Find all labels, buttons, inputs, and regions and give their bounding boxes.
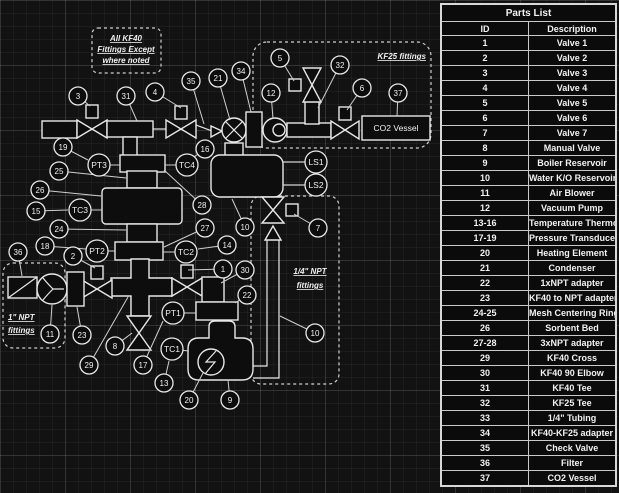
- valve-4: [181, 120, 196, 138]
- part-description: KF40 to NPT adapter: [529, 291, 617, 306]
- callout-label-3: 3: [76, 92, 81, 101]
- callout-label-12: 12: [267, 89, 276, 98]
- callout-label-30: 30: [241, 266, 250, 275]
- quarter-inch-tubing-33: [253, 240, 279, 378]
- part-id: 17-19: [441, 231, 529, 246]
- table-row: 8Manual Valve: [441, 141, 616, 156]
- table-row: 9Boiler Reservoir: [441, 156, 616, 171]
- callout-label-25: 25: [55, 167, 64, 176]
- parts-list-title: Parts List: [441, 4, 616, 22]
- callout-label-PT2: PT2: [89, 246, 105, 256]
- table-row: 12Vacuum Pump: [441, 201, 616, 216]
- table-row: 5Valve 5: [441, 96, 616, 111]
- part-id: 22: [441, 276, 529, 291]
- callout-label-1: 1: [221, 265, 226, 274]
- valve-7-handle: [286, 204, 298, 216]
- kf40-note-line2: Fittings Except: [97, 45, 155, 54]
- mesh-ring-lower-24: [127, 224, 157, 242]
- part-id: 1: [441, 36, 529, 51]
- part-description: Vacuum Pump: [529, 201, 617, 216]
- table-row: 2Valve 2: [441, 51, 616, 66]
- part-id: 27-28: [441, 336, 529, 351]
- manual-valve-8: [127, 333, 151, 350]
- part-description: 1xNPT adapter: [529, 276, 617, 291]
- part-id: 23: [441, 291, 529, 306]
- part-id: 26: [441, 321, 529, 336]
- part-id: 33: [441, 411, 529, 426]
- part-description: KF40 Tee: [529, 381, 617, 396]
- part-id: 20: [441, 246, 529, 261]
- table-row: 21Condenser: [441, 261, 616, 276]
- valve-3: [77, 120, 92, 138]
- quarter-npt-line2: fittings: [297, 281, 324, 290]
- part-description: KF25 Tee: [529, 396, 617, 411]
- valve-2: [97, 280, 112, 298]
- callout-label-21: 21: [214, 74, 223, 83]
- kf40-90-elbow-30: [202, 277, 224, 302]
- piping-diagram: All KF40 Fittings Except where noted KF2…: [0, 0, 440, 493]
- valve-6: [345, 121, 359, 139]
- part-id: 13-16: [441, 216, 529, 231]
- sorbent-bed-26: [102, 188, 182, 224]
- table-row: 331/4" Tubing: [441, 411, 616, 426]
- part-description: Valve 7: [529, 126, 617, 141]
- top-3xnpt-adapter-28: [120, 155, 165, 172]
- piping-diagram-page: All KF40 Fittings Except where noted KF2…: [0, 0, 619, 493]
- callout-label-27: 27: [201, 224, 210, 233]
- table-row: 4Valve 4: [441, 81, 616, 96]
- mesh-ring-upper-25: [127, 171, 157, 188]
- part-description: Boiler Reservoir: [529, 156, 617, 171]
- valve-2-handle: [91, 266, 103, 279]
- co2-vessel-label: CO2 Vessel: [374, 123, 419, 133]
- valve-1-handle: [181, 265, 193, 278]
- part-id: 34: [441, 426, 529, 441]
- parts-table-body: 1Valve 12Valve 23Valve 34Valve 45Valve 5…: [441, 36, 616, 487]
- manual-valve-8: [127, 316, 151, 333]
- callout-label-19: 19: [59, 143, 68, 152]
- table-row: 27-283xNPT adapter: [441, 336, 616, 351]
- table-row: 23KF40 to NPT adapter: [441, 291, 616, 306]
- quarter-npt-line1: 1/4" NPT: [293, 267, 327, 276]
- check-valve-35-line: [196, 125, 212, 131]
- table-row: 7Valve 7: [441, 126, 616, 141]
- callout-label-29: 29: [85, 361, 94, 370]
- part-id: 30: [441, 366, 529, 381]
- part-description: Manual Valve: [529, 141, 617, 156]
- callout-leader-29: [89, 297, 128, 365]
- part-id: 12: [441, 201, 529, 216]
- part-id: 11: [441, 186, 529, 201]
- callout-label-TC1: TC1: [164, 344, 180, 354]
- parts-list-table: Parts List ID Description 1Valve 12Valve…: [440, 3, 617, 487]
- callout-label-7: 7: [316, 224, 321, 233]
- part-id: 29: [441, 351, 529, 366]
- callout-label-15: 15: [32, 207, 41, 216]
- kf40-kf25-adapter-34: [246, 112, 262, 147]
- part-id: 32: [441, 396, 529, 411]
- part-description: Pressure Transducers: [529, 231, 617, 246]
- callout-label-20: 20: [185, 396, 194, 405]
- callout-label-36: 36: [14, 248, 23, 257]
- part-id: 8: [441, 141, 529, 156]
- part-description: CO2 Vessel: [529, 471, 617, 487]
- callout-label-PT3: PT3: [91, 160, 107, 170]
- callout-label-35: 35: [187, 77, 196, 86]
- part-id: 37: [441, 471, 529, 487]
- part-description: Valve 5: [529, 96, 617, 111]
- part-description: Heating Element: [529, 246, 617, 261]
- part-description: 3xNPT adapter: [529, 336, 617, 351]
- part-description: Mesh Centering Rings: [529, 306, 617, 321]
- part-id: 7: [441, 126, 529, 141]
- callout-label-LS1: LS1: [308, 157, 323, 167]
- callout-label-26: 26: [36, 186, 45, 195]
- part-description: KF40 Cross: [529, 351, 617, 366]
- table-row: 34KF40-KF25 adapter: [441, 426, 616, 441]
- callout-label-18: 18: [41, 242, 50, 251]
- one-inch-npt-line2: fittings: [8, 326, 35, 335]
- one-inch-npt-line1: 1" NPT: [8, 313, 36, 322]
- table-row: 6Valve 6: [441, 111, 616, 126]
- table-row: 29KF40 Cross: [441, 351, 616, 366]
- kf25-pipe: [287, 123, 331, 137]
- valve-4: [166, 120, 181, 138]
- part-description: Valve 1: [529, 36, 617, 51]
- callout-label-TC3: TC3: [72, 205, 88, 215]
- table-row: 26Sorbent Bed: [441, 321, 616, 336]
- part-description: Valve 4: [529, 81, 617, 96]
- callout-label-22: 22: [243, 291, 252, 300]
- callout-label-4: 4: [153, 88, 158, 97]
- part-description: Valve 6: [529, 111, 617, 126]
- callout-label-23: 23: [78, 331, 87, 340]
- callout-label-6: 6: [360, 84, 365, 93]
- 1xnpt-adapter-22: [196, 302, 238, 320]
- table-row: 13-16Temperature Thermocouples: [441, 216, 616, 231]
- part-id: 9: [441, 156, 529, 171]
- kf40-npt-adapter-23: [67, 272, 84, 306]
- table-row: 10Water K/O Reservoir: [441, 171, 616, 186]
- part-description: Air Blower: [529, 186, 617, 201]
- callout-label-31: 31: [122, 92, 131, 101]
- part-id: 21: [441, 261, 529, 276]
- part-description: KF40 90 Elbow: [529, 366, 617, 381]
- part-description: Check Valve: [529, 441, 617, 456]
- kf25-note-label: KF25 fittings: [378, 52, 427, 61]
- callout-label-PT1: PT1: [165, 308, 181, 318]
- column-header-id: ID: [441, 22, 529, 36]
- part-description: Valve 2: [529, 51, 617, 66]
- table-row: 30KF40 90 Elbow: [441, 366, 616, 381]
- valve-1: [172, 278, 187, 296]
- part-id: 6: [441, 111, 529, 126]
- part-description: Sorbent Bed: [529, 321, 617, 336]
- callout-label-LS2: LS2: [308, 180, 323, 190]
- callout-label-TC4: TC4: [179, 160, 195, 170]
- table-row: 221xNPT adapter: [441, 276, 616, 291]
- callout-label-14: 14: [223, 241, 232, 250]
- bottom-3xnpt-adapter-27: [115, 242, 163, 260]
- column-header-description: Description: [529, 22, 617, 36]
- table-row: 17-19Pressure Transducers: [441, 231, 616, 246]
- callout-label-32: 32: [336, 61, 345, 70]
- kf25-tee-32-stem: [305, 100, 319, 124]
- part-description: Filter: [529, 456, 617, 471]
- table-row: 36Filter: [441, 456, 616, 471]
- part-id: 4: [441, 81, 529, 96]
- callout-label-24: 24: [55, 225, 64, 234]
- table-row: 32KF25 Tee: [441, 396, 616, 411]
- callout-label-5: 5: [278, 54, 283, 63]
- part-description: 1/4" Tubing: [529, 411, 617, 426]
- valve-7: [262, 210, 284, 223]
- table-row: 31KF40 Tee: [441, 381, 616, 396]
- part-id: 2: [441, 51, 529, 66]
- part-id: 3: [441, 66, 529, 81]
- callout-label-11: 11: [46, 330, 55, 339]
- quarter-inch-tubing-33: [253, 240, 267, 366]
- valve-7: [262, 197, 284, 210]
- valve-3-handle: [86, 105, 98, 118]
- part-description: Temperature Thermocouples: [529, 216, 617, 231]
- part-description: Valve 3: [529, 66, 617, 81]
- tee-31: [107, 121, 153, 137]
- table-row: 20Heating Element: [441, 246, 616, 261]
- kf40-note-line3: where noted: [102, 56, 150, 65]
- callout-label-10: 10: [241, 223, 250, 232]
- part-description: Water K/O Reservoir: [529, 171, 617, 186]
- part-description: KF40-KF25 adapter: [529, 426, 617, 441]
- part-id: 5: [441, 96, 529, 111]
- callout-label-9: 9: [228, 396, 233, 405]
- table-row: 1Valve 1: [441, 36, 616, 51]
- part-id: 36: [441, 456, 529, 471]
- callout-label-10: 10: [311, 329, 320, 338]
- part-id: 35: [441, 441, 529, 456]
- callout-label-17: 17: [139, 361, 148, 370]
- flow-arrow-up: [265, 226, 281, 240]
- part-id: 31: [441, 381, 529, 396]
- part-id: 24-25: [441, 306, 529, 321]
- table-row: 3Valve 3: [441, 66, 616, 81]
- valve-6: [331, 121, 345, 139]
- part-id: 10: [441, 171, 529, 186]
- callout-label-2: 2: [71, 252, 76, 261]
- valve-5: [303, 85, 321, 102]
- callout-label-8: 8: [113, 342, 118, 351]
- callout-label-37: 37: [394, 89, 403, 98]
- valve-5: [303, 68, 321, 85]
- water-ko-reservoir-10: [211, 155, 283, 197]
- valve-1: [187, 278, 202, 296]
- callout-label-13: 13: [160, 379, 169, 388]
- callout-label-TC2: TC2: [178, 247, 194, 257]
- callout-label-34: 34: [237, 67, 246, 76]
- callout-leader-24: [59, 229, 126, 230]
- table-row: 24-25Mesh Centering Rings: [441, 306, 616, 321]
- tank-neck: [225, 143, 243, 156]
- vacuum-pump-rotor: [273, 124, 285, 136]
- kf40-note-line1: All KF40: [109, 34, 143, 43]
- table-row: 37CO2 Vessel: [441, 471, 616, 487]
- callout-label-16: 16: [201, 145, 210, 154]
- table-row: 11Air Blower: [441, 186, 616, 201]
- valve-6-handle: [339, 107, 351, 120]
- part-description: Condenser: [529, 261, 617, 276]
- valve-3: [92, 120, 107, 138]
- table-row: 35Check Valve: [441, 441, 616, 456]
- inlet-stub-pipe: [42, 121, 77, 138]
- callout-label-28: 28: [198, 201, 207, 210]
- check-valve-35: [211, 126, 222, 137]
- valve-5-handle: [289, 79, 301, 91]
